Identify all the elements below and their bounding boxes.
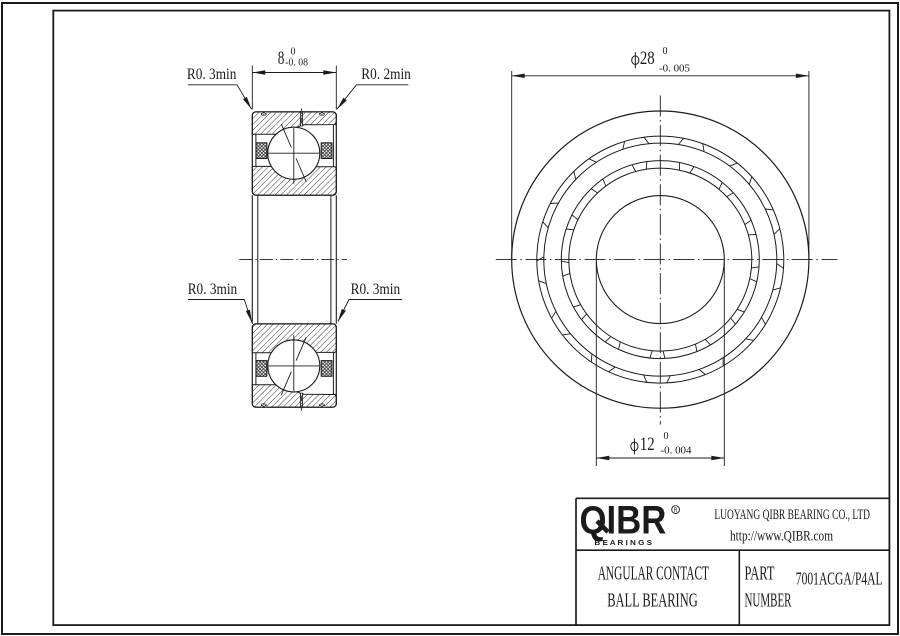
svg-text:R0. 3min: R0. 3min bbox=[351, 280, 401, 298]
svg-text:B E A R I N G S: B E A R I N G S bbox=[594, 538, 652, 547]
svg-text:http://www.QIBR.com: http://www.QIBR.com bbox=[730, 528, 833, 545]
svg-text:12: 12 bbox=[640, 434, 655, 455]
svg-text:-0. 005: -0. 005 bbox=[659, 63, 690, 74]
svg-text:28: 28 bbox=[640, 48, 655, 69]
svg-text:ANGULAR CONTACT: ANGULAR CONTACT bbox=[598, 564, 709, 585]
svg-text:R: R bbox=[674, 508, 678, 514]
svg-text:R0. 2min: R0. 2min bbox=[361, 65, 411, 83]
svg-text:8: 8 bbox=[278, 48, 285, 69]
svg-text:BALL BEARING: BALL BEARING bbox=[607, 591, 698, 612]
svg-text:-0. 08: -0. 08 bbox=[285, 57, 308, 68]
svg-text:LUOYANG QIBR BEARING CO., LTD: LUOYANG QIBR BEARING CO., LTD bbox=[714, 506, 870, 523]
svg-text:PART: PART bbox=[745, 564, 775, 585]
svg-text:R0. 3min: R0. 3min bbox=[187, 65, 237, 83]
svg-text:-0. 004: -0. 004 bbox=[661, 446, 693, 457]
svg-text:NUMBER: NUMBER bbox=[745, 591, 792, 612]
svg-text:R0. 3min: R0. 3min bbox=[188, 280, 238, 298]
svg-text:7001ACGA/P4AL: 7001ACGA/P4AL bbox=[796, 569, 883, 589]
svg-text:0: 0 bbox=[664, 431, 669, 442]
svg-text:0: 0 bbox=[291, 47, 296, 58]
svg-text:QIBR: QIBR bbox=[580, 499, 667, 543]
svg-text:0: 0 bbox=[663, 46, 668, 57]
